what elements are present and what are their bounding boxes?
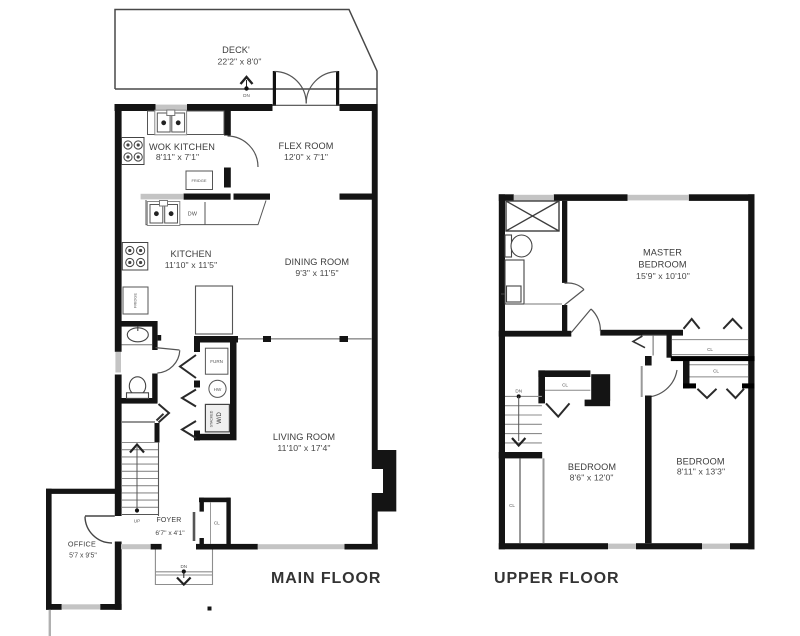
svg-text:CL: CL [713, 369, 719, 374]
svg-text:8'11" x 7'1": 8'11" x 7'1" [156, 152, 199, 162]
svg-text:LIVING ROOM: LIVING ROOM [273, 432, 335, 442]
svg-text:BEDROOM: BEDROOM [568, 462, 616, 472]
svg-text:CL: CL [509, 503, 515, 508]
svg-text:BEDROOM: BEDROOM [676, 457, 724, 467]
svg-text:KITCHEN: KITCHEN [170, 249, 211, 259]
svg-text:5'7 x 9'5": 5'7 x 9'5" [69, 553, 97, 560]
svg-text:OFFICE: OFFICE [68, 540, 96, 549]
svg-text:15'9" x 10'10": 15'9" x 10'10" [636, 271, 690, 281]
svg-text:DECK': DECK' [222, 45, 250, 55]
svg-text:9'3" x 11'5": 9'3" x 11'5" [295, 268, 338, 278]
svg-text:FRIDGE: FRIDGE [133, 293, 138, 308]
svg-text:CL: CL [214, 521, 220, 526]
svg-text:DN: DN [515, 389, 522, 394]
svg-text:CL: CL [562, 383, 568, 388]
svg-text:8'11" x 13'3": 8'11" x 13'3" [677, 467, 725, 477]
svg-text:DN: DN [180, 564, 187, 569]
svg-text:8'6" x 12'0": 8'6" x 12'0" [570, 472, 614, 482]
svg-text:6'7" x 4'1": 6'7" x 4'1" [155, 530, 185, 537]
svg-text:FRIDGE: FRIDGE [191, 178, 206, 183]
svg-text:HW: HW [214, 387, 222, 392]
svg-text:12'0" x 7'1": 12'0" x 7'1" [284, 152, 328, 162]
svg-text:CL: CL [707, 347, 713, 352]
svg-text:DN: DN [243, 93, 250, 98]
svg-text:WOK KITCHEN: WOK KITCHEN [149, 142, 215, 152]
svg-text:22'2" x 8'0": 22'2" x 8'0" [217, 57, 261, 67]
svg-text:DINING ROOM: DINING ROOM [285, 257, 349, 267]
svg-text:MASTER: MASTER [643, 248, 682, 258]
svg-text:11'10" x 17'4": 11'10" x 17'4" [277, 443, 330, 453]
svg-text:FLEX ROOM: FLEX ROOM [278, 141, 333, 151]
svg-text:UPPER FLOOR: UPPER FLOOR [494, 570, 619, 587]
svg-text:FOYER: FOYER [156, 517, 181, 524]
svg-text:DW: DW [188, 212, 198, 218]
svg-text:UP: UP [134, 519, 140, 524]
svg-text:W/D: W/D [217, 412, 223, 424]
svg-text:FURN: FURN [210, 359, 223, 364]
svg-text:BEDROOM: BEDROOM [638, 260, 686, 270]
svg-text:11'10" x 11'5": 11'10" x 11'5" [165, 260, 218, 270]
svg-text:MAIN FLOOR: MAIN FLOOR [271, 570, 381, 587]
svg-text:STACKED: STACKED [210, 410, 214, 427]
